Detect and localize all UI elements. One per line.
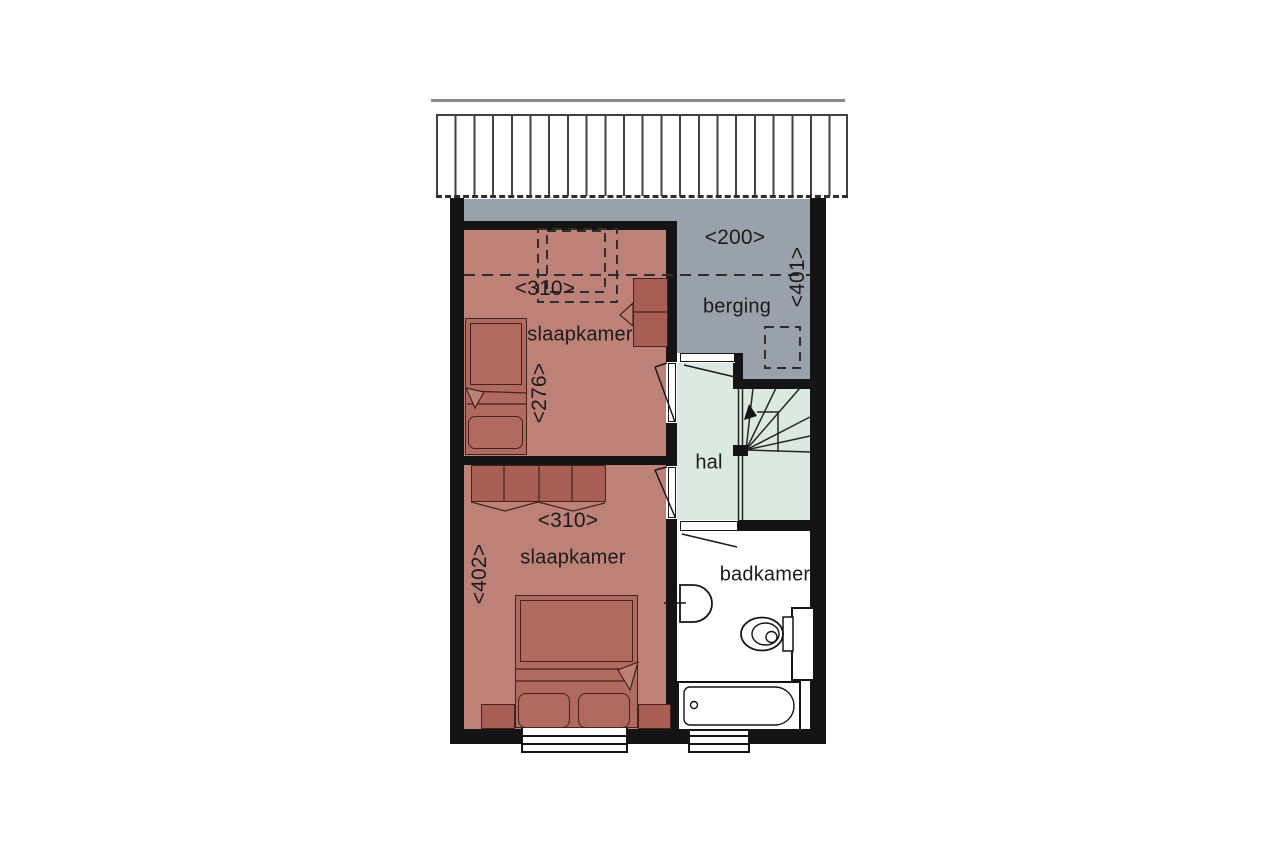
roof-hatching [436,114,848,196]
floor-berging-strip [464,199,810,221]
wardrobe-slaapkamer-1 [633,278,668,347]
wall-slaapkamer1-top [450,221,677,230]
wall-between-bedrooms [450,456,677,465]
dimension-berging-width: <200> [705,226,766,250]
double-bed-pillow-right [578,693,630,728]
dimension-slaapkamer1-depth: <276> [528,363,552,424]
room-label-hal: hal [695,452,722,475]
wall-divider-c [666,519,677,729]
wall-hal-bottom [738,520,826,531]
double-bed-pillow-left [518,693,570,728]
nightstand-left [481,704,515,729]
door-berging [680,353,735,362]
door-slaapkamer-1 [668,363,676,422]
dimension-slaapkamer1-width: <310> [515,277,576,301]
dimension-slaapkamer2-width: <310> [538,509,599,533]
floor-plan-canvas: <310> slaapkamer <276> <310> slaapkamer … [0,0,1280,853]
room-label-slaapkamer-1: slaapkamer [527,324,632,347]
floor-hal [677,353,733,520]
wall-right [810,198,826,744]
room-label-slaapkamer-2: slaapkamer [520,547,625,570]
dimension-slaapkamer2-depth: <402> [468,544,492,605]
door-badkamer [680,521,738,531]
roof-edge-dashed-line [436,195,848,198]
floor-badkamer [677,531,810,729]
room-label-berging: berging [703,296,771,319]
wall-bottom [450,729,826,744]
wardrobe-slaapkamer-2 [471,465,606,502]
window-slaapkamer-2 [521,725,628,753]
single-bed-blanket [470,323,522,385]
wall-left [450,198,464,744]
ridge-line [431,99,845,102]
floor-berging-lower [743,353,810,379]
double-bed-blanket [520,600,633,662]
window-badkamer [688,725,750,753]
single-bed-pillow [468,416,523,449]
floor-hal-stairs [733,389,810,520]
room-label-badkamer: badkamer [720,564,811,587]
door-slaapkamer-2 [668,467,676,518]
wall-berging-bottom [733,379,826,389]
dimension-berging-depth: <401> [786,247,810,308]
nightstand-right [638,704,671,729]
